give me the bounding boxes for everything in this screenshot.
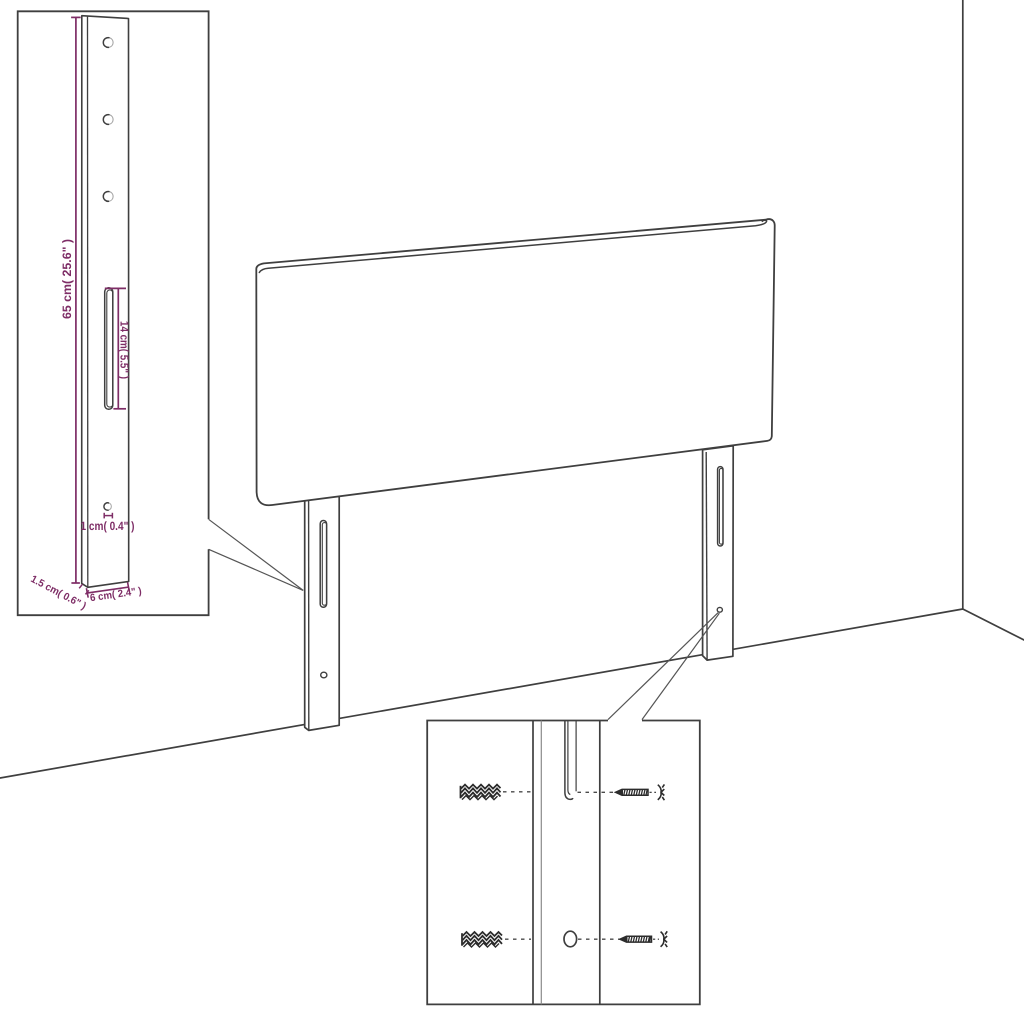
svg-text:14 cm( 5.5" ): 14 cm( 5.5" )	[117, 321, 129, 379]
svg-text:1 cm( 0.4" ): 1 cm( 0.4" )	[81, 519, 135, 533]
svg-text:65 cm( 25.6" ): 65 cm( 25.6" )	[60, 239, 74, 319]
